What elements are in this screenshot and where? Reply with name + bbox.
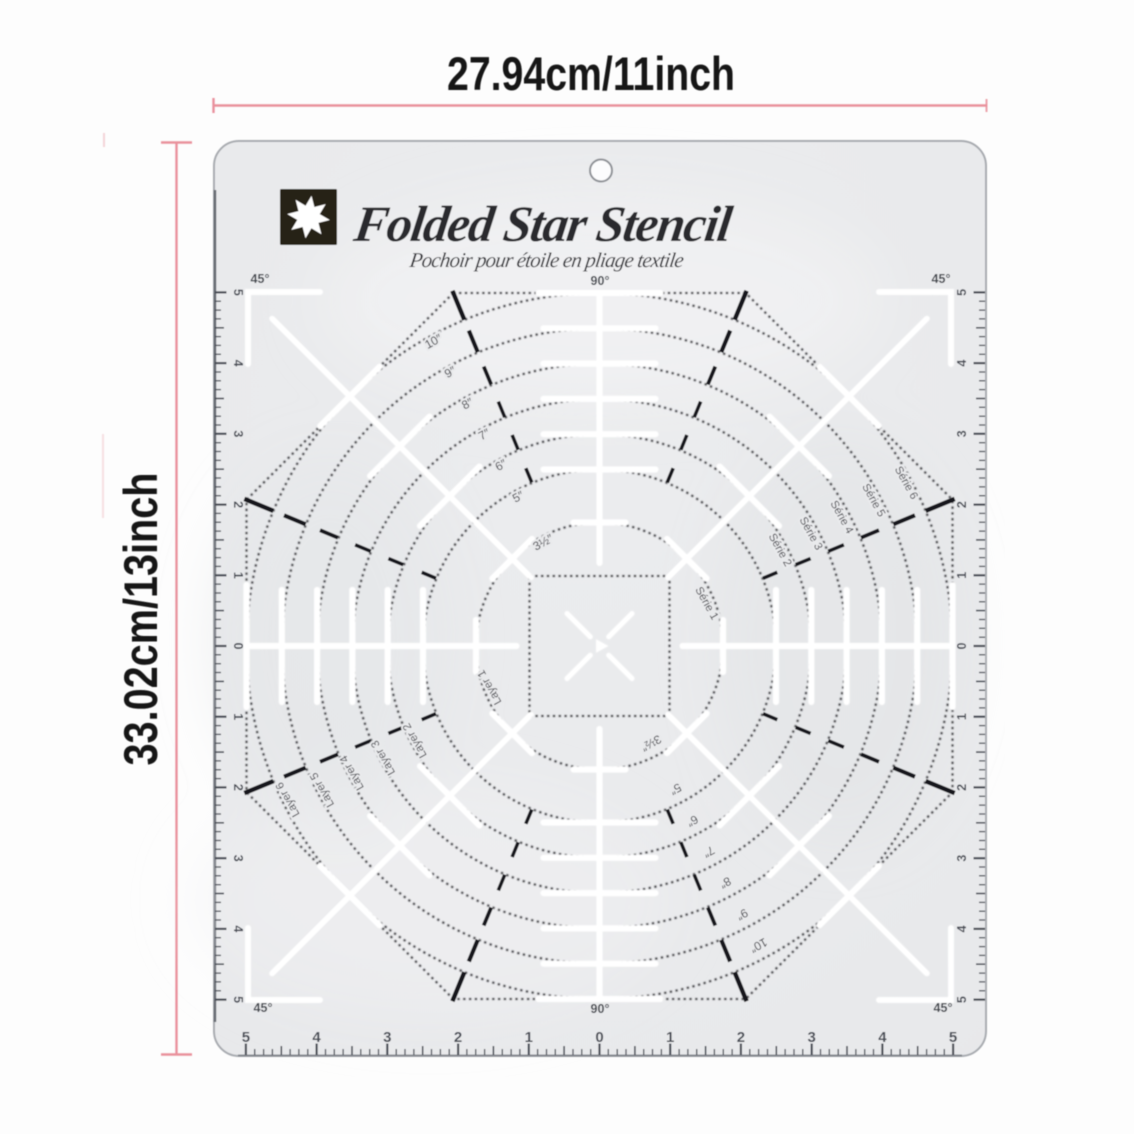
svg-text:90°: 90° (591, 274, 610, 288)
svg-text:Pochoir pour étoile en pliage: Pochoir pour étoile en pliage textile (407, 248, 685, 272)
svg-text:45°: 45° (254, 1001, 273, 1015)
svg-text:1: 1 (231, 572, 245, 579)
svg-text:0: 0 (955, 642, 969, 649)
svg-text:4: 4 (955, 925, 969, 932)
svg-text:2: 2 (737, 1029, 745, 1046)
svg-text:5: 5 (231, 289, 245, 296)
svg-text:0: 0 (595, 1029, 603, 1046)
svg-text:45°: 45° (932, 272, 951, 286)
svg-text:4: 4 (231, 925, 245, 932)
svg-text:2: 2 (231, 501, 245, 508)
svg-text:2: 2 (454, 1029, 462, 1046)
svg-text:3: 3 (383, 1029, 391, 1046)
svg-text:90°: 90° (591, 1002, 610, 1016)
svg-text:1: 1 (666, 1029, 674, 1046)
svg-text:33.02cm/13inch: 33.02cm/13inch (114, 473, 167, 766)
svg-text:Folded Star Stencil: Folded Star Stencil (350, 196, 737, 253)
svg-text:4: 4 (955, 360, 969, 367)
svg-text:4: 4 (878, 1029, 887, 1046)
svg-text:45°: 45° (934, 1001, 953, 1015)
svg-text:4: 4 (312, 1029, 321, 1046)
svg-text:2: 2 (231, 784, 245, 791)
svg-text:1: 1 (231, 713, 245, 720)
svg-text:4: 4 (231, 360, 245, 367)
svg-text:5: 5 (231, 996, 245, 1003)
svg-text:3: 3 (231, 430, 245, 437)
svg-text:3: 3 (955, 855, 969, 862)
svg-text:1: 1 (955, 713, 969, 720)
svg-text:3: 3 (955, 430, 969, 437)
svg-text:45°: 45° (251, 272, 270, 286)
svg-text:1: 1 (955, 572, 969, 579)
svg-text:3: 3 (231, 855, 245, 862)
svg-text:2: 2 (955, 784, 969, 791)
svg-text:1: 1 (525, 1029, 533, 1046)
svg-text:2: 2 (955, 501, 969, 508)
svg-text:5: 5 (955, 996, 969, 1003)
svg-text:5: 5 (955, 289, 969, 296)
svg-text:5: 5 (242, 1029, 250, 1046)
svg-text:3: 3 (808, 1029, 816, 1046)
svg-text:27.94cm/11inch: 27.94cm/11inch (447, 47, 735, 100)
svg-text:5: 5 (949, 1029, 957, 1046)
svg-text:0: 0 (231, 643, 245, 650)
